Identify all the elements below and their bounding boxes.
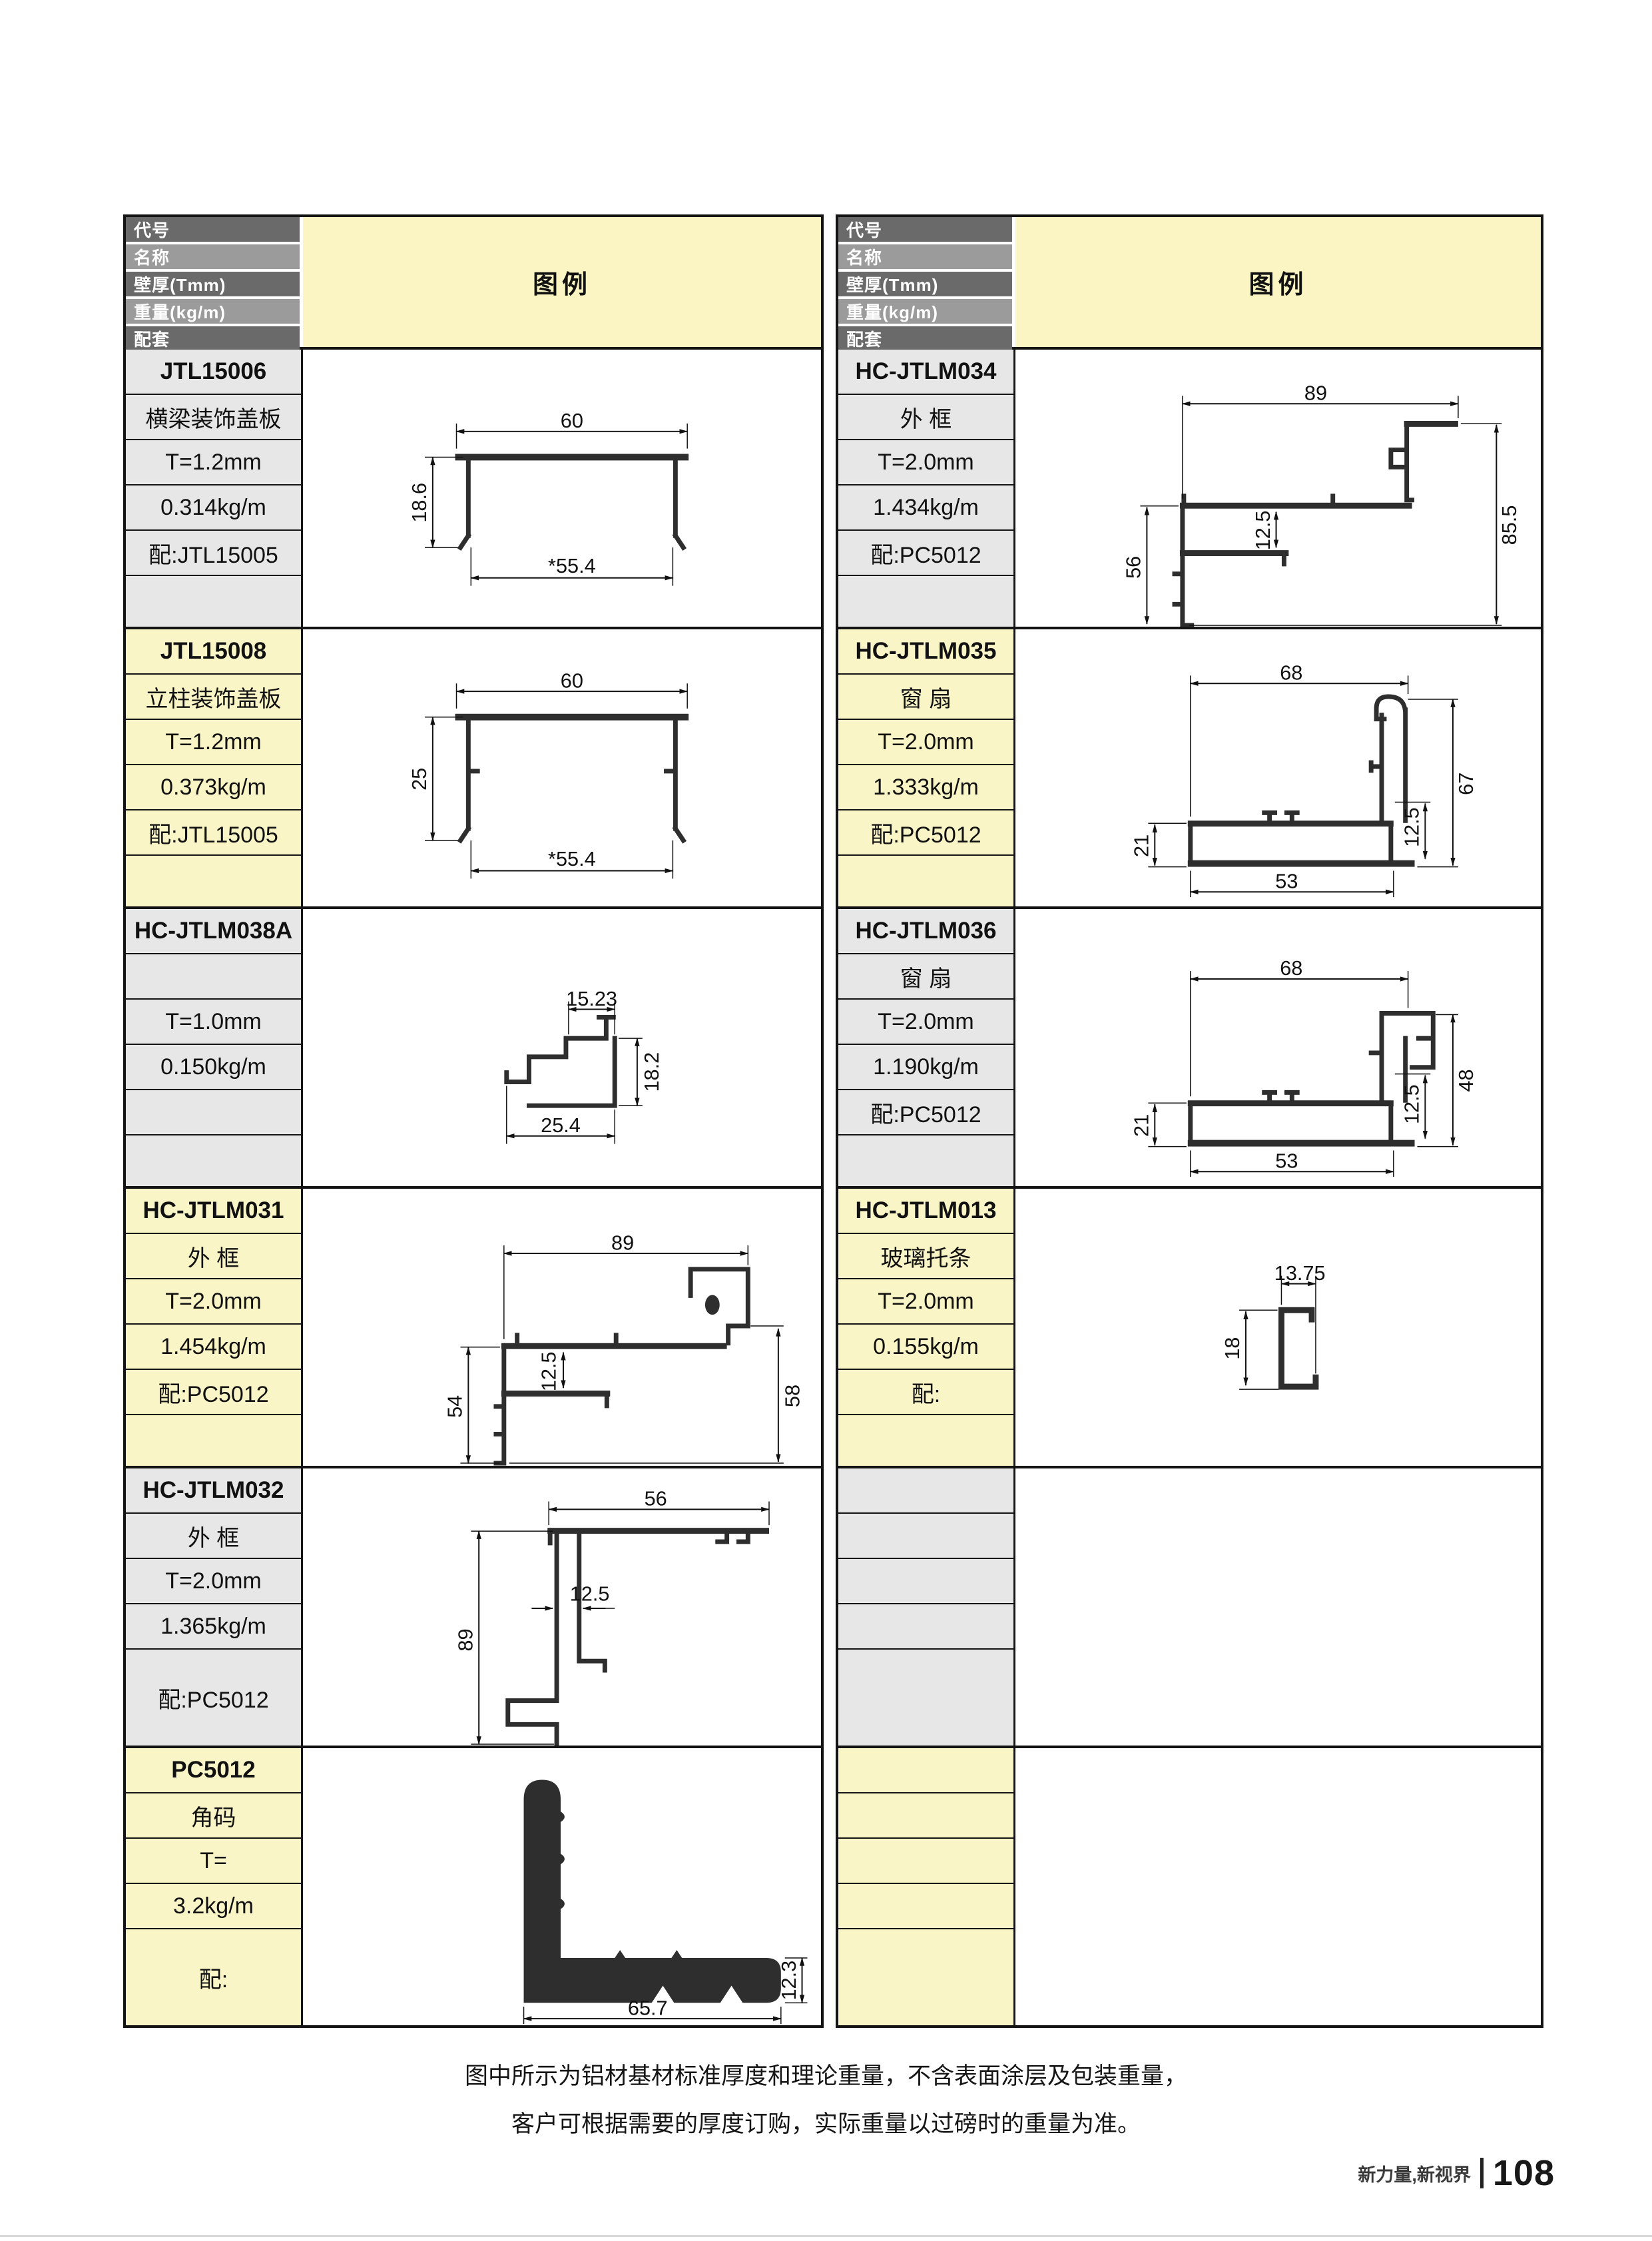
profile-drawing-hc-jtlm038a: 15.23 18.2 25.4 (303, 909, 821, 1186)
profile-shape (524, 1780, 781, 2003)
profile-drawing-hc-jtlm032: 56 12.5 89 (303, 1468, 821, 1746)
dim-label: 25 (408, 768, 431, 791)
dim-label: 56 (1122, 556, 1145, 579)
cell-matching: 配: (126, 1929, 301, 2025)
cell-name: 窗 扇 (838, 954, 1013, 1000)
profile-shape (507, 1017, 615, 1106)
cell-filler (838, 1135, 1013, 1186)
cell-matching: 配:PC5012 (126, 1650, 301, 1746)
cell-thickness: T=1.0mm (126, 1000, 301, 1045)
footnote-line-2: 客户可根据需要的厚度订购，实际重量以过磅时的重量为准。 (0, 2100, 1652, 2148)
profile-shape (1188, 1140, 1415, 1147)
drawing-cell: 12.3 65.7 (303, 1748, 821, 2025)
dim-label: 53 (1275, 1149, 1298, 1172)
dim-label: 12.5 (1251, 511, 1274, 551)
label-column: HC-JTLM038A T=1.0mm 0.150kg/m (126, 909, 303, 1186)
profile-shape (1175, 427, 1412, 625)
drawing-cell: 15.23 18.2 25.4 (303, 909, 821, 1186)
cell-matching: 配:PC5012 (838, 810, 1013, 856)
header-legend: 图例 (303, 217, 821, 347)
dim-label: 21 (1130, 834, 1153, 857)
drawing-cell: 68 12.5 48 21 53 (1015, 909, 1541, 1186)
cell-filler (126, 576, 301, 627)
dim-label: 56 (645, 1487, 667, 1510)
cell-name: 横梁装饰盖板 (126, 395, 301, 440)
cell-filler (838, 576, 1013, 627)
table-header: 代号 名称 壁厚(Tmm) 重量(kg/m) 配套 图例 (838, 217, 1541, 347)
drawing-cell: 13.75 18 (1015, 1189, 1541, 1466)
cell-matching: 配:JTL15005 (126, 810, 301, 856)
profile-drawing-pc5012: 12.3 65.7 (303, 1748, 821, 2025)
cell-matching (838, 1929, 1013, 2025)
profile-shape (1191, 1013, 1433, 1139)
cell-name (838, 1793, 1013, 1839)
cell-thickness: T=2.0mm (838, 1000, 1013, 1045)
cell-matching: 配:PC5012 (126, 1370, 301, 1415)
drawing-cell-empty (1015, 1468, 1541, 1746)
table-header: 代号 名称 壁厚(Tmm) 重量(kg/m) 配套 图例 (126, 217, 821, 347)
dim-label: 25.4 (541, 1114, 581, 1137)
cell-thickness: T=2.0mm (838, 1279, 1013, 1325)
drawing-cell: 68 67 12.5 21 53 (1015, 629, 1541, 906)
dim-label: 89 (611, 1231, 634, 1254)
profile-shape (1191, 697, 1406, 860)
footer-divider (1480, 2158, 1484, 2188)
drawing-cell: 60 18.6 *55.4 (303, 350, 821, 627)
cell-code: HC-JTLM038A (126, 909, 301, 954)
dim-label: 12.5 (537, 1351, 560, 1391)
cell-weight: 1.333kg/m (838, 765, 1013, 810)
profile-drawing-hc-jtlm035: 68 67 12.5 21 53 (1015, 629, 1541, 906)
product-row-pc5012: PC5012 角码 T= 3.2kg/m 配: 12.3 65.7 (126, 1746, 821, 2025)
product-row-hc-jtlm036: HC-JTLM036 窗 扇 T=2.0mm 1.190kg/m 配:PC501… (838, 906, 1541, 1186)
cell-name: 立柱装饰盖板 (126, 675, 301, 720)
profile-shape (1188, 860, 1415, 867)
drawing-cell: 89 54 12.5 58 (303, 1189, 821, 1466)
profile-shape (1180, 503, 1412, 509)
label-column: JTL15008 立柱装饰盖板 T=1.2mm 0.373kg/m 配:JTL1… (126, 629, 303, 906)
header-label-column: 代号 名称 壁厚(Tmm) 重量(kg/m) 配套 (838, 217, 1015, 347)
profile-shape (508, 1534, 748, 1744)
cell-filler (126, 856, 301, 906)
header-legend: 图例 (1015, 217, 1541, 347)
header-weight: 重量(kg/m) (126, 299, 300, 324)
dim-label: 65.7 (628, 1996, 668, 2019)
cell-code: PC5012 (126, 1748, 301, 1793)
page-edge-line (0, 2235, 1652, 2237)
dim-label: 67 (1454, 773, 1478, 795)
cell-name (838, 1514, 1013, 1559)
label-column: HC-JTLM035 窗 扇 T=2.0mm 1.333kg/m 配:PC501… (838, 629, 1015, 906)
cell-weight: 0.150kg/m (126, 1045, 301, 1090)
cell-code: HC-JTLM034 (838, 350, 1013, 395)
footnote: 图中所示为铝材基材标准厚度和理论重量，不含表面涂层及包装重量， 客户可根据需要的… (0, 2053, 1652, 2148)
cell-weight: 0.373kg/m (126, 765, 301, 810)
profile-shape (1281, 1310, 1316, 1387)
cell-thickness: T=2.0mm (838, 440, 1013, 485)
page-footer: 新力量,新视界 108 (1358, 2152, 1555, 2194)
cell-thickness: T=2.0mm (838, 720, 1013, 765)
cell-weight: 1.434kg/m (838, 485, 1013, 531)
profile-shape (460, 721, 683, 840)
label-column: PC5012 角码 T= 3.2kg/m 配: (126, 1748, 303, 2025)
dim-label: 89 (1304, 381, 1327, 404)
profile-drawing-jtl15008: 60 25 *55.4 (303, 629, 821, 906)
dim-label: 48 (1454, 1069, 1478, 1092)
dim-label: *55.4 (548, 554, 596, 577)
dim-label: 12.5 (1400, 807, 1424, 847)
header-code: 代号 (838, 217, 1012, 242)
product-row-jtl15006: JTL15006 横梁装饰盖板 T=1.2mm 0.314kg/m 配:JTL1… (126, 347, 821, 627)
label-column: JTL15006 横梁装饰盖板 T=1.2mm 0.314kg/m 配:JTL1… (126, 350, 303, 627)
label-column: HC-JTLM032 外 框 T=2.0mm 1.365kg/m 配:PC501… (126, 1468, 303, 1746)
cell-matching: 配: (838, 1370, 1013, 1415)
label-column: HC-JTLM013 玻璃托条 T=2.0mm 0.155kg/m 配: (838, 1189, 1015, 1466)
dim-label: 21 (1130, 1114, 1153, 1137)
drawing-cell-empty (1015, 1748, 1541, 2025)
header-code: 代号 (126, 217, 300, 242)
cell-matching (126, 1090, 301, 1135)
drawing-cell: 89 12.5 85.5 56 (1015, 350, 1541, 627)
dim-label: 54 (443, 1395, 467, 1418)
cell-code: JTL15008 (126, 629, 301, 675)
spec-table-right: 代号 名称 壁厚(Tmm) 重量(kg/m) 配套 图例 HC-JTLM034 … (836, 214, 1543, 2028)
cell-code: HC-JTLM013 (838, 1189, 1013, 1234)
profile-shape (455, 454, 689, 460)
cell-code: HC-JTLM036 (838, 909, 1013, 954)
cell-weight (838, 1884, 1013, 1929)
profile-shape (1404, 421, 1458, 427)
dim-label: 13.75 (1274, 1261, 1326, 1285)
dim-label: 12.5 (1400, 1084, 1424, 1124)
cell-matching: 配:PC5012 (838, 1090, 1013, 1135)
cell-name: 外 框 (126, 1514, 301, 1559)
header-thickness: 壁厚(Tmm) (126, 272, 300, 296)
product-row-hc-jtlm038a: HC-JTLM038A T=1.0mm 0.150kg/m 15.23 18.2… (126, 906, 821, 1186)
cell-name: 外 框 (126, 1234, 301, 1279)
dim-label: 53 (1275, 869, 1298, 892)
cell-name: 窗 扇 (838, 675, 1013, 720)
footnote-line-1: 图中所示为铝材基材标准厚度和理论重量，不含表面涂层及包装重量， (0, 2053, 1652, 2100)
cell-weight: 0.155kg/m (838, 1325, 1013, 1370)
cell-thickness (838, 1559, 1013, 1604)
drawing-cell: 56 12.5 89 (303, 1468, 821, 1746)
dim-label: 85.5 (1498, 505, 1521, 545)
dim-label: 60 (561, 409, 583, 432)
label-column: HC-JTLM036 窗 扇 T=2.0mm 1.190kg/m 配:PC501… (838, 909, 1015, 1186)
profile-shape (460, 460, 683, 547)
cell-weight: 3.2kg/m (126, 1884, 301, 1929)
dim-label: 18.6 (408, 483, 431, 523)
header-name: 名称 (838, 244, 1012, 269)
dim-label: 15.23 (566, 987, 617, 1010)
dim-label: 89 (453, 1628, 477, 1651)
header-matching: 配套 (126, 326, 300, 351)
header-name: 名称 (126, 244, 300, 269)
cell-filler (838, 1415, 1013, 1466)
dim-label: *55.4 (548, 847, 596, 870)
cell-filler (126, 1415, 301, 1466)
cell-thickness: T=1.2mm (126, 720, 301, 765)
cell-thickness (838, 1839, 1013, 1884)
product-row-hc-jtlm032: HC-JTLM032 外 框 T=2.0mm 1.365kg/m 配:PC501… (126, 1466, 821, 1746)
page-number: 108 (1493, 2152, 1555, 2194)
label-column (838, 1748, 1015, 2025)
cell-name: 角码 (126, 1793, 301, 1839)
profile-drawing-hc-jtlm031: 89 54 12.5 58 (303, 1189, 821, 1466)
dim-label: 12.3 (777, 1961, 800, 2001)
cell-filler (838, 856, 1013, 906)
dim-label: 58 (781, 1385, 804, 1407)
cell-weight: 1.454kg/m (126, 1325, 301, 1370)
dim-label: 12.5 (570, 1582, 610, 1605)
cell-code: HC-JTLM031 (126, 1189, 301, 1234)
product-row-hc-jtlm031: HC-JTLM031 外 框 T=2.0mm 1.454kg/m 配:PC501… (126, 1186, 821, 1466)
profile-drawing-hc-jtlm034: 89 12.5 85.5 56 (1015, 350, 1541, 627)
profile-shape (1180, 550, 1288, 556)
label-column: HC-JTLM034 外 框 T=2.0mm 1.434kg/m 配:PC501… (838, 350, 1015, 627)
drawing-cell: 60 25 *55.4 (303, 629, 821, 906)
cell-thickness: T=2.0mm (126, 1279, 301, 1325)
label-column: HC-JTLM031 外 框 T=2.0mm 1.454kg/m 配:PC501… (126, 1189, 303, 1466)
dim-label: 68 (1280, 956, 1302, 980)
cell-filler (126, 1135, 301, 1186)
cell-code: HC-JTLM035 (838, 629, 1013, 675)
product-row-hc-jtlm013: HC-JTLM013 玻璃托条 T=2.0mm 0.155kg/m 配: 13.… (838, 1186, 1541, 1466)
cell-thickness: T= (126, 1839, 301, 1884)
cell-name: 外 框 (838, 395, 1013, 440)
cell-name (126, 954, 301, 1000)
dim-label: 68 (1280, 661, 1302, 684)
cell-weight (838, 1604, 1013, 1650)
dim-label: 60 (561, 669, 583, 692)
cell-code: JTL15006 (126, 350, 301, 395)
product-row-empty-2 (838, 1746, 1541, 2025)
header-matching: 配套 (838, 326, 1012, 351)
spec-table-left: 代号 名称 壁厚(Tmm) 重量(kg/m) 配套 图例 JTL15006 横梁… (123, 214, 824, 2028)
cell-weight: 1.190kg/m (838, 1045, 1013, 1090)
catalog-page: 代号 名称 壁厚(Tmm) 重量(kg/m) 配套 图例 JTL15006 横梁… (0, 0, 1652, 2241)
product-row-hc-jtlm035: HC-JTLM035 窗 扇 T=2.0mm 1.333kg/m 配:PC501… (838, 627, 1541, 906)
header-label-column: 代号 名称 壁厚(Tmm) 重量(kg/m) 配套 (126, 217, 303, 347)
dim-label: 18 (1221, 1337, 1244, 1360)
cell-matching: 配:PC5012 (838, 531, 1013, 576)
cell-name: 玻璃托条 (838, 1234, 1013, 1279)
profile-drawing-hc-jtlm013: 13.75 18 (1015, 1189, 1541, 1466)
profile-drawing-jtl15006: 60 18.6 *55.4 (303, 350, 821, 627)
cell-weight: 0.314kg/m (126, 485, 301, 531)
cell-weight: 1.365kg/m (126, 1604, 301, 1650)
cell-matching (838, 1650, 1013, 1746)
header-weight: 重量(kg/m) (838, 299, 1012, 324)
cell-matching: 配:JTL15005 (126, 531, 301, 576)
footer-slogan: 新力量,新视界 (1358, 2160, 1471, 2186)
dim-label: 18.2 (640, 1052, 663, 1092)
cell-thickness: T=2.0mm (126, 1559, 301, 1604)
header-thickness: 壁厚(Tmm) (838, 272, 1012, 296)
profile-shape (455, 714, 689, 721)
profile-shape (705, 1295, 720, 1315)
cell-thickness: T=1.2mm (126, 440, 301, 485)
profile-drawing-hc-jtlm036: 68 12.5 48 21 53 (1015, 909, 1541, 1186)
product-row-hc-jtlm034: HC-JTLM034 外 框 T=2.0mm 1.434kg/m 配:PC501… (838, 347, 1541, 627)
product-row-empty-1 (838, 1466, 1541, 1746)
product-row-jtl15008: JTL15008 立柱装饰盖板 T=1.2mm 0.373kg/m 配:JTL1… (126, 627, 821, 906)
cell-code (838, 1468, 1013, 1514)
label-column (838, 1468, 1015, 1746)
cell-code (838, 1748, 1013, 1793)
cell-code: HC-JTLM032 (126, 1468, 301, 1514)
